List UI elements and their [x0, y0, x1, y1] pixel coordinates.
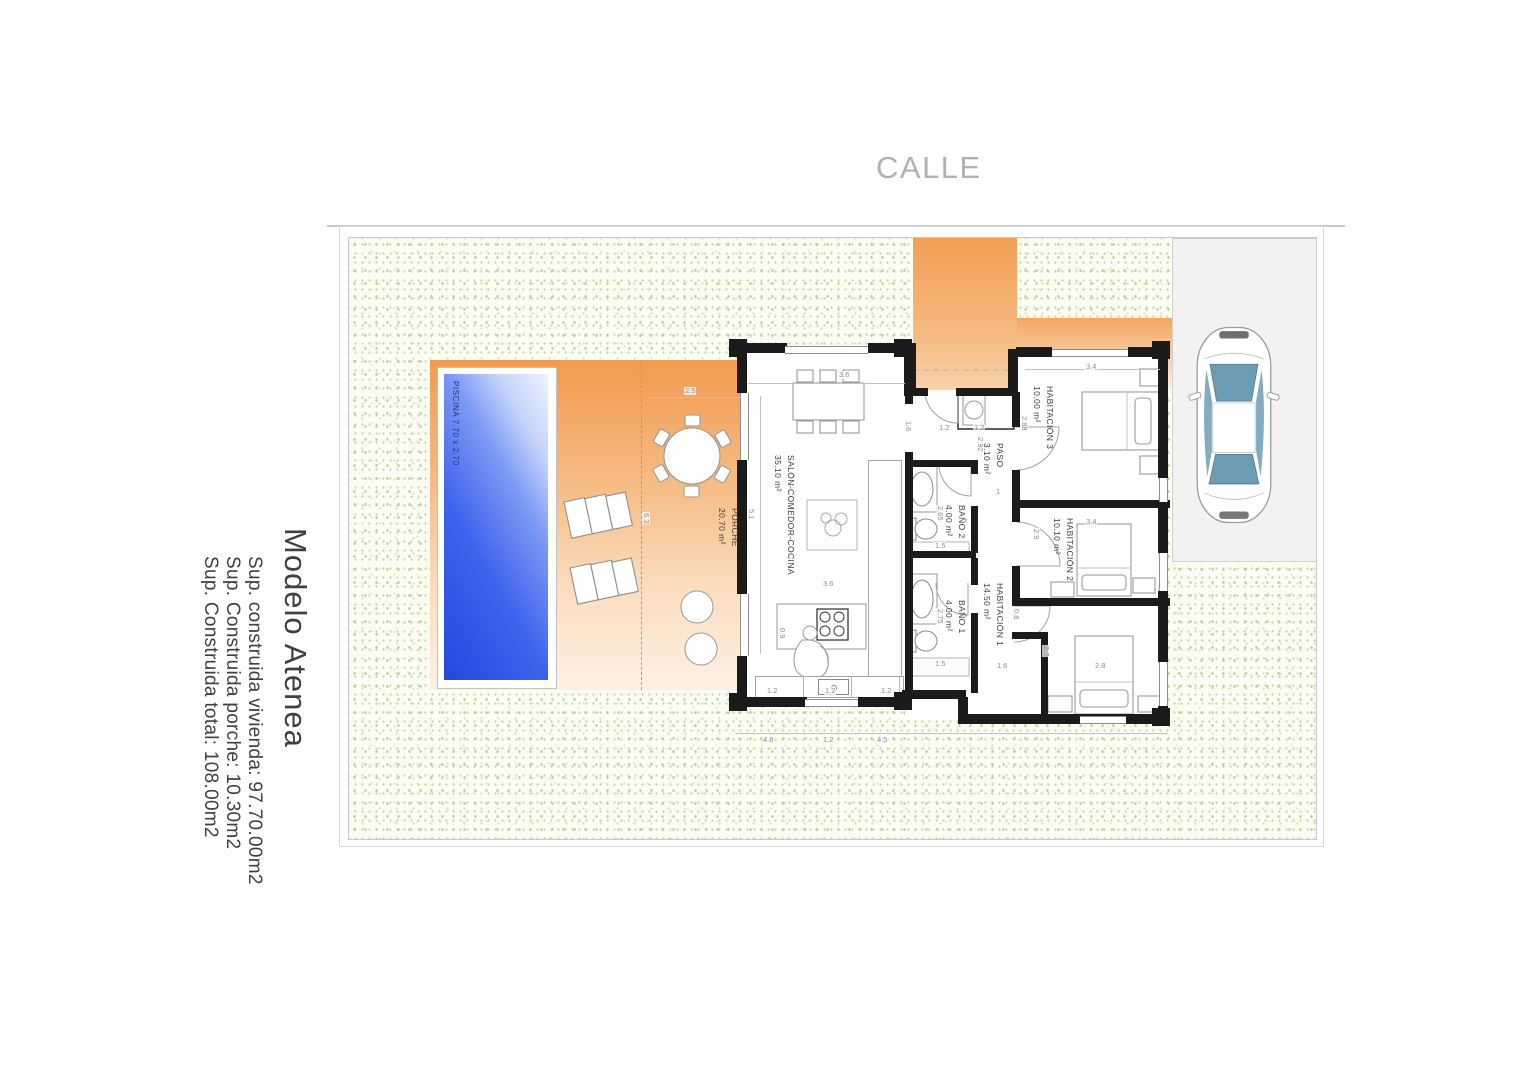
bed-room3: [1075, 368, 1167, 476]
dimension-label: 4.8: [762, 736, 774, 744]
room-label-habitacion3: HABITACIÓN 3 10.00 m²: [1030, 386, 1056, 449]
dimension-label: 1.5: [934, 660, 946, 668]
info-line-porche: Sup. Construida porche: 10.30m2: [221, 528, 243, 885]
wall-segment: [737, 353, 747, 393]
car-top-view: [1188, 318, 1280, 532]
dimension-label: 0.9: [778, 627, 786, 639]
window: [1159, 553, 1168, 591]
dimension-line: [760, 396, 761, 654]
window: [1080, 716, 1126, 724]
wall-segment: [1158, 347, 1168, 478]
wall-segment: [905, 390, 913, 404]
wall-segment: [958, 714, 1168, 724]
dimension-label: 2.65: [936, 505, 944, 522]
room-label-salon: SALÓN-COMEDOR-COCINA 35.10 m²: [771, 455, 797, 575]
coffee-table: [805, 498, 861, 554]
wall-segment: [910, 460, 976, 467]
dimension-label: 1.2: [938, 424, 950, 432]
room-label-habitacion2: HABITACIÓN 2 10.10 m²: [1050, 518, 1076, 581]
dimension-label: 2.9: [1032, 528, 1040, 540]
project-title: Modelo Atenea: [277, 528, 313, 885]
pool-label: PISCINA 7.70 x 2.70: [451, 381, 460, 466]
wall-segment: [910, 551, 976, 558]
project-info-panel: Modelo Atenea Sup. construida vivienda: …: [199, 528, 313, 885]
dimension-label: 1: [995, 488, 1001, 496]
dimension-label: 1.6: [996, 662, 1008, 670]
dining-table: [789, 369, 869, 435]
dimension-label: 2.75: [936, 608, 944, 625]
dimension-label: 0.8: [1012, 608, 1020, 620]
room-label-habitacion1: HABITACIÓN 1 14.50 m²: [980, 583, 1006, 646]
wall-segment: [894, 339, 912, 357]
sun-loungers: [556, 488, 651, 633]
dimension-label: 1.2: [824, 687, 836, 695]
dimension-label: 2.88: [1020, 415, 1028, 432]
dimension-label: 3.6: [838, 371, 850, 379]
dimension-label: 6.3: [642, 512, 650, 524]
window: [1052, 349, 1128, 357]
bed-room1: [1046, 630, 1164, 720]
window: [740, 393, 749, 460]
dimension-label: 1.2: [766, 687, 778, 695]
dimension-label: 3.4: [1085, 363, 1097, 371]
wall-segment: [971, 613, 978, 693]
dimension-label: 1.2: [822, 736, 834, 744]
wall-segment: [971, 558, 978, 585]
dimension-label: 3.4: [1085, 518, 1097, 526]
wall-segment: [1016, 347, 1052, 357]
dimension-label: 3.6: [822, 580, 834, 588]
dimension-label: 4.5: [876, 736, 888, 744]
wall-segment: [1152, 341, 1170, 359]
wall-segment: [971, 460, 978, 474]
car-icon: [1188, 318, 1280, 532]
street-label: CALLE: [876, 150, 982, 186]
wall-segment: [733, 697, 807, 707]
room-label-porche: PORCHE 20.70 m²: [715, 508, 741, 547]
dimension-label: 2.8: [1094, 662, 1106, 670]
wall-segment: [1158, 502, 1168, 553]
info-line-vivienda: Sup. construida vivienda: 97.70.00m2: [243, 528, 265, 885]
dimension-label: 1.6: [904, 420, 912, 432]
dimension-label: 1.2: [880, 687, 892, 695]
wall-segment: [905, 452, 913, 699]
wall-segment: [956, 388, 1016, 396]
dimension-label: 5.1: [747, 508, 755, 520]
window: [785, 346, 868, 354]
porch-dining-set: [652, 414, 732, 499]
dimension-label: 2.7: [1042, 645, 1050, 657]
dimension-label: 1.5: [934, 542, 946, 550]
wall-segment: [1012, 500, 1170, 508]
floorplan-canvas: CALLE PISCINA 7.70 x 2.70: [0, 0, 1524, 1080]
info-line-total: Sup. Construida total: 108.00m2: [199, 528, 221, 885]
porch-side-tables: [675, 588, 727, 670]
window: [1159, 478, 1168, 502]
dimension-label: 1.2: [973, 424, 985, 432]
dimension-line: [748, 383, 905, 384]
wall-segment: [1012, 470, 1020, 522]
window: [805, 699, 858, 707]
dimension-label: 2.5: [684, 387, 696, 395]
dimension-line: [648, 397, 741, 398]
window: [740, 594, 749, 656]
dimension-line: [737, 733, 1168, 734]
wall-segment: [912, 388, 928, 396]
dimension-label: 2.92: [976, 436, 984, 453]
room-label-bano1: BAÑO 1 4.00 m²: [942, 600, 968, 634]
window: [1159, 662, 1168, 706]
wall-segment: [1012, 598, 1170, 606]
wall-segment: [971, 506, 978, 553]
room-label-bano2: BAÑO 2 4.00 m²: [942, 505, 968, 539]
entrance-walkway-vertical: [913, 238, 1017, 390]
utility-closet: [957, 390, 1017, 432]
sofa: [868, 460, 902, 705]
